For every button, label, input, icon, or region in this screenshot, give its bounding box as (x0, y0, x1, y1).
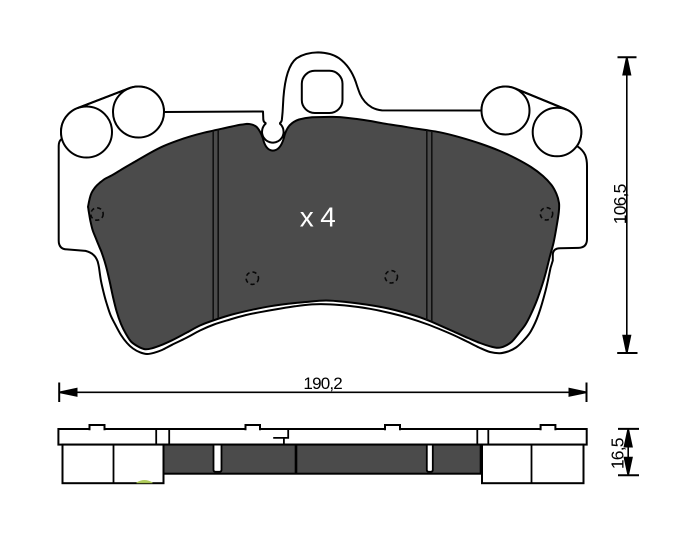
svg-text:190,2: 190,2 (303, 374, 342, 393)
svg-text:x: x (300, 202, 314, 233)
svg-text:106,5: 106,5 (610, 184, 630, 224)
svg-text:16,5: 16,5 (608, 438, 628, 469)
svg-text:4: 4 (320, 202, 336, 233)
